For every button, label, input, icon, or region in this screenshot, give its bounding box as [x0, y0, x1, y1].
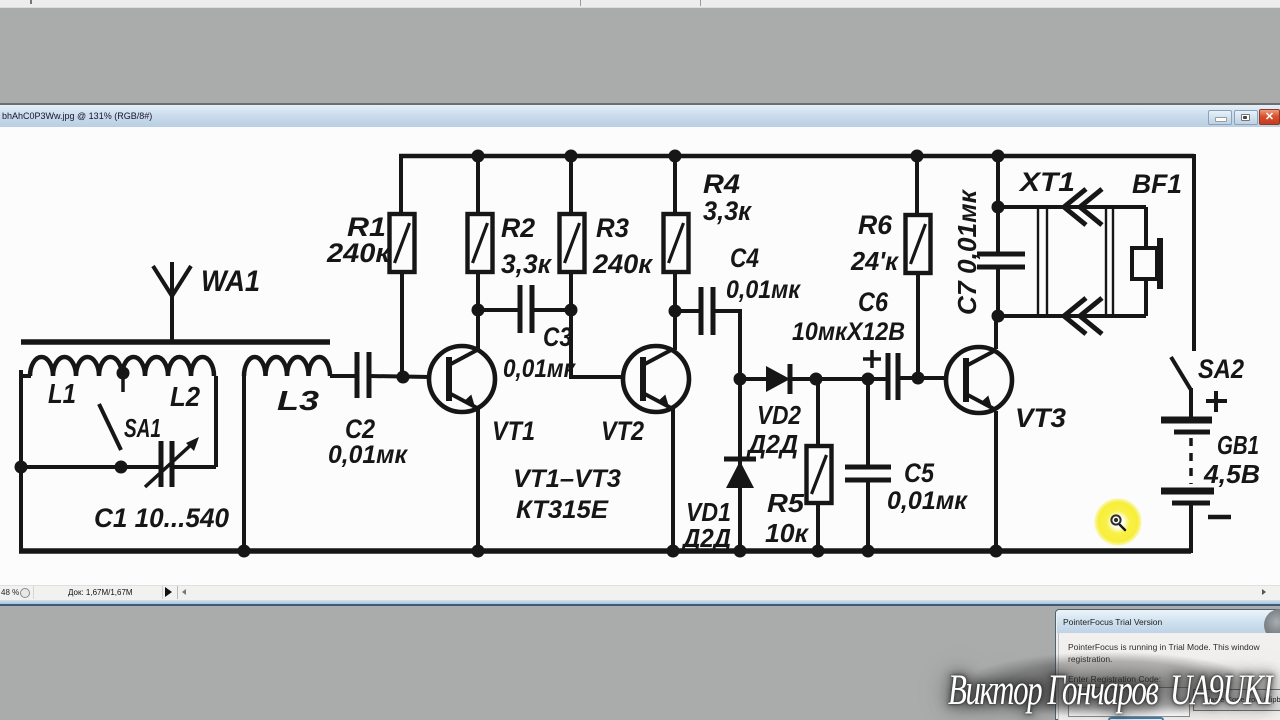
svg-text:C5: C5 — [904, 458, 935, 488]
svg-text:R3: R3 — [596, 213, 629, 243]
svg-text:SA2: SA2 — [1198, 354, 1244, 384]
svg-text:C6: C6 — [858, 287, 889, 317]
svg-text:L3: L3 — [277, 385, 320, 416]
svg-text:C7 0,01мк: C7 0,01мк — [952, 188, 982, 315]
svg-text:VT2: VT2 — [601, 416, 644, 446]
svg-text:XT1: XT1 — [1018, 167, 1075, 197]
svg-text:R4: R4 — [703, 169, 740, 199]
svg-text:3,3к: 3,3к — [703, 196, 752, 226]
svg-text:10к: 10к — [765, 518, 810, 548]
svg-text:C1 10...540: C1 10...540 — [94, 503, 229, 533]
svg-text:240к: 240к — [592, 249, 653, 279]
svg-text:L1: L1 — [48, 378, 76, 409]
svg-text:4,5В: 4,5В — [1203, 459, 1260, 489]
svg-text:0,01мк: 0,01мк — [503, 355, 576, 383]
svg-text:VT1: VT1 — [492, 416, 535, 446]
svg-text:BF1: BF1 — [1132, 169, 1182, 199]
svg-text:R6: R6 — [858, 210, 893, 240]
svg-text:WA1: WA1 — [201, 265, 260, 298]
svg-text:R2: R2 — [501, 213, 535, 243]
svg-text:3,3к: 3,3к — [501, 249, 552, 279]
svg-text:C3: C3 — [543, 322, 572, 352]
svg-text:SA1: SA1 — [124, 413, 161, 443]
svg-text:R5: R5 — [767, 488, 805, 518]
svg-text:0,01мк: 0,01мк — [328, 441, 408, 469]
svg-text:VT1–VT3: VT1–VT3 — [513, 465, 621, 493]
svg-text:24ʹк: 24ʹк — [850, 246, 900, 276]
svg-text:КТ315E: КТ315E — [516, 496, 609, 524]
svg-text:VT3: VT3 — [1015, 403, 1066, 433]
svg-text:0,01мк: 0,01мк — [887, 487, 968, 515]
svg-text:10мкX12В: 10мкX12В — [792, 318, 905, 346]
svg-text:0,01мк: 0,01мк — [726, 276, 801, 304]
svg-text:240к: 240к — [326, 238, 391, 268]
svg-text:GB1: GB1 — [1217, 430, 1259, 460]
svg-text:Д2Д: Д2Д — [681, 523, 731, 553]
svg-text:VD2: VD2 — [757, 400, 801, 430]
svg-text:L2: L2 — [170, 381, 200, 412]
svg-text:C4: C4 — [730, 243, 759, 273]
svg-text:Д2Д: Д2Д — [746, 429, 798, 459]
svg-text:C2: C2 — [345, 414, 375, 444]
